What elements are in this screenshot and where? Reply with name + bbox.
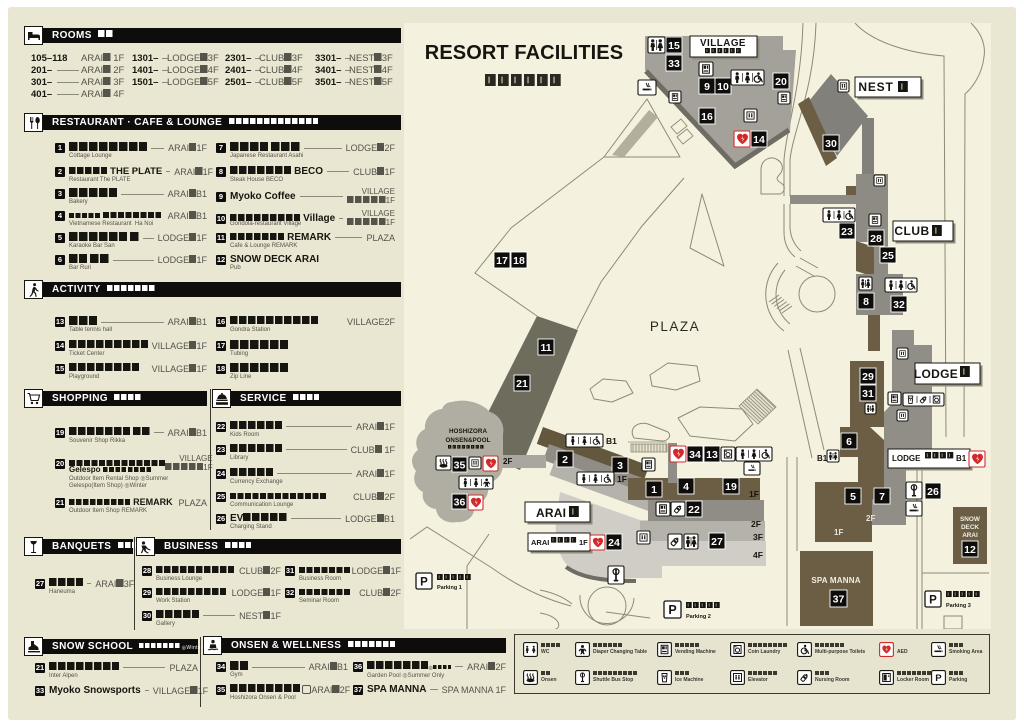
svg-text:37: 37 [833,593,845,605]
svg-text:27: 27 [711,536,723,548]
svg-text:12: 12 [964,544,976,556]
svg-text:4: 4 [683,481,689,493]
svg-text:31: 31 [862,388,874,400]
svg-text:1F: 1F [617,474,627,484]
svg-text:ONSEN&POOL: ONSEN&POOL [445,437,490,444]
svg-text:B1: B1 [956,454,967,463]
svg-text:1: 1 [651,484,657,496]
svg-text:23: 23 [841,226,853,238]
svg-text:P: P [668,603,676,617]
svg-text:B1: B1 [606,436,617,446]
svg-text:14: 14 [753,134,765,146]
svg-text:32: 32 [893,299,905,311]
svg-text:19: 19 [725,481,737,493]
svg-text:30: 30 [825,138,837,150]
svg-text:8: 8 [863,296,869,308]
svg-text:2F: 2F [503,457,512,466]
svg-text:33: 33 [668,58,680,70]
svg-text:5: 5 [850,491,856,503]
svg-text:6: 6 [846,436,852,448]
svg-text:20: 20 [775,76,787,88]
svg-text:22: 22 [688,504,700,516]
svg-text:ARAI: ARAI [962,532,978,539]
svg-text:RESORT FACILITIES: RESORT FACILITIES [425,42,623,64]
svg-text:29: 29 [862,371,874,383]
svg-text:HOSHIZORA: HOSHIZORA [449,428,487,435]
svg-text:4F: 4F [753,550,763,560]
svg-text:P: P [935,673,942,684]
svg-text:21: 21 [516,378,528,390]
svg-text:PLAZA: PLAZA [650,319,700,334]
svg-text:ARAI: ARAI [536,506,566,520]
svg-text:18: 18 [513,255,525,267]
svg-text:Parking 3: Parking 3 [946,603,971,609]
svg-text:34: 34 [689,449,701,461]
svg-text:28: 28 [870,233,882,245]
svg-text:LODGE: LODGE [892,454,921,463]
svg-text:VILLAGE: VILLAGE [700,38,746,49]
svg-text:P: P [929,594,937,606]
svg-text:1F: 1F [834,528,843,537]
svg-text:2F: 2F [866,514,875,523]
svg-text:1F: 1F [579,538,588,547]
svg-text:SPA MANNA: SPA MANNA [811,576,860,585]
svg-text:ARAI: ARAI [531,538,549,547]
svg-text:2: 2 [562,454,568,466]
svg-text:9: 9 [704,81,710,93]
svg-text:Parking 1: Parking 1 [437,585,462,591]
svg-text:35: 35 [454,459,466,471]
svg-text:11: 11 [540,342,551,354]
svg-text:Parking 2: Parking 2 [686,614,711,620]
svg-text:24: 24 [608,537,620,549]
svg-text:25: 25 [882,250,894,262]
svg-text:CLUB: CLUB [894,224,929,238]
svg-text:DECK: DECK [961,524,979,531]
svg-text:1F: 1F [749,489,759,499]
svg-text:36: 36 [454,496,466,508]
svg-text:15: 15 [668,40,680,52]
svg-text:SNOW: SNOW [960,516,981,523]
svg-text:2F: 2F [751,519,761,529]
svg-text:13: 13 [706,449,718,461]
svg-text:P: P [420,576,428,588]
svg-text:17: 17 [496,255,508,267]
svg-text:B1: B1 [817,454,828,463]
svg-text:16: 16 [701,111,713,123]
svg-text:NEST: NEST [858,80,893,94]
svg-text:3F: 3F [753,532,763,542]
svg-text:26: 26 [927,486,939,498]
svg-text:7: 7 [879,491,885,503]
svg-text:3: 3 [617,460,623,472]
svg-text:10: 10 [717,81,729,93]
svg-text:LODGE: LODGE [914,367,958,381]
